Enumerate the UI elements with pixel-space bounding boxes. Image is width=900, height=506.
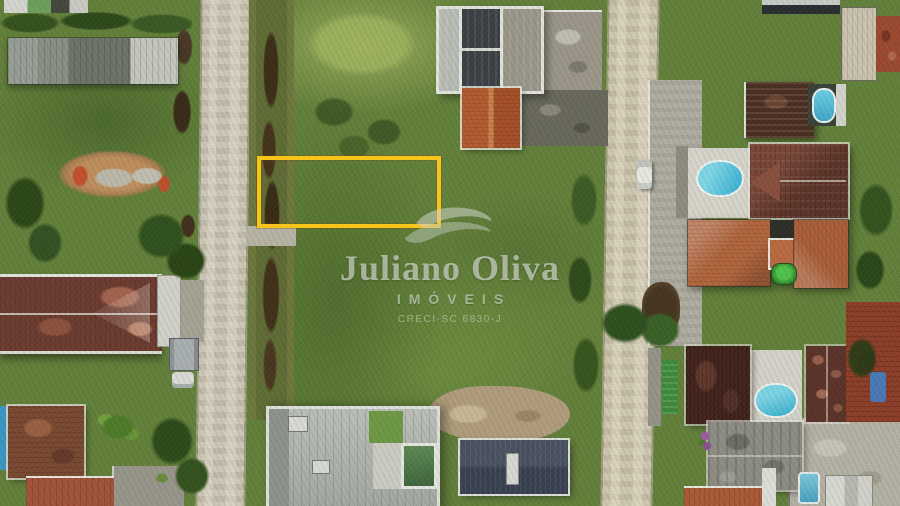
tan-panel-roof-top-right — [842, 8, 876, 80]
dark-gravel-yard — [522, 90, 608, 146]
long-gray-warehouse — [8, 38, 178, 84]
plot-highlight-rectangle — [257, 156, 441, 228]
orange-roof-house-top-center — [462, 88, 520, 148]
swimming-pool-mid-right — [696, 160, 744, 197]
white-roof-corner — [4, 0, 88, 13]
parapet-wall — [459, 9, 462, 91]
terracotta-roof-left-wing — [688, 220, 770, 286]
green-pool — [401, 443, 437, 489]
navy-roof-house-bottom — [460, 440, 568, 494]
mowed-grass-patch — [292, 4, 437, 89]
roof-gable — [92, 283, 150, 343]
tree-cluster-bottom-left — [132, 396, 218, 501]
orange-roof-house-corner — [26, 476, 114, 506]
purple-flower-bush — [697, 428, 715, 454]
roof-gable — [750, 162, 780, 202]
construction-house-top-center — [436, 6, 544, 94]
parapet-wall — [459, 48, 500, 51]
modern-flat-roof-house-bottom — [266, 406, 440, 506]
big-dark-red-roof-house-right — [750, 144, 848, 218]
white-patio — [373, 443, 401, 489]
trailer-box — [170, 339, 198, 370]
white-wall-strip — [762, 468, 776, 506]
tree-cluster-center-right — [585, 285, 690, 365]
gray-wall — [676, 146, 688, 218]
construction-gravel-lot — [538, 10, 602, 90]
dark-roof-top-right — [762, 0, 840, 14]
terracotta-roof-right-wing — [794, 220, 848, 288]
roof-vent — [313, 461, 329, 473]
maroon-roof-house-bottom-right — [686, 346, 750, 424]
small-pool-bottom-right — [798, 472, 820, 504]
courtyard-shadow — [770, 220, 794, 238]
white-car-on-road — [637, 160, 652, 189]
weathered-gray-roof-house — [708, 422, 802, 490]
aerial-photo: Juliano Oliva IMÓVEIS CRECI-SC 6830-J — [0, 0, 900, 506]
field-bush-texture — [294, 82, 434, 167]
parapet-wall — [500, 9, 503, 91]
dark-brown-roof-house-right — [744, 82, 814, 138]
lawn-square — [369, 411, 403, 443]
green-turf-strip — [662, 360, 678, 414]
tree-cluster-left — [0, 158, 72, 273]
swimming-pool-top-right — [812, 88, 836, 123]
red-tile-roof-top-corner — [876, 16, 900, 72]
red-roof-house-bottom-left — [8, 406, 84, 478]
swimming-pool-bottom-right — [754, 383, 798, 418]
parked-car — [172, 372, 194, 388]
terracotta-roof-complex-right — [686, 216, 848, 290]
tree-cluster-right-edge — [848, 160, 900, 310]
roof-vent — [507, 454, 518, 484]
tree-cluster-mid-left — [116, 196, 216, 291]
orange-roof-bottom-right — [684, 486, 762, 506]
watermark-division-text: IMÓVEIS — [389, 291, 511, 307]
pool-deck-white — [836, 84, 846, 126]
white-structures-bottom-right — [826, 476, 872, 506]
watermark-license-text: CRECI-SC 6830-J — [398, 314, 502, 325]
blue-tarp — [870, 372, 886, 402]
green-covered-car — [772, 264, 796, 284]
bridge-slab — [246, 226, 296, 246]
roof-vent — [289, 417, 307, 431]
dirt-patch-bottom-center — [428, 386, 570, 442]
watermark-brand-text: Juliano Oliva — [340, 250, 560, 288]
